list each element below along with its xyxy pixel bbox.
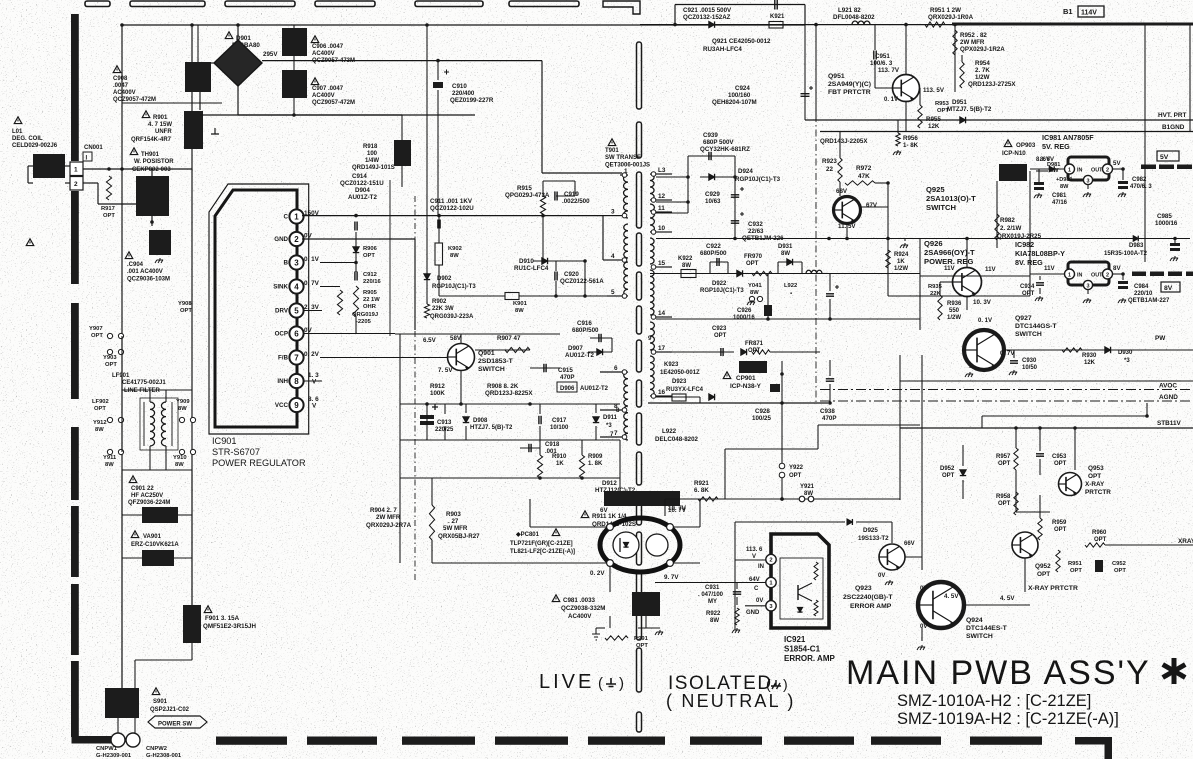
- svg-text:CE41775-002J1: CE41775-002J1: [122, 380, 166, 386]
- svg-text:R930: R930: [1082, 353, 1097, 359]
- svg-text:QRX05BJ-R27: QRX05BJ-R27: [438, 533, 480, 540]
- svg-text:CELD029-002J6: CELD029-002J6: [12, 143, 58, 149]
- svg-text:R972: R972: [856, 165, 872, 172]
- svg-text:ICP-N10: ICP-N10: [1002, 150, 1026, 157]
- svg-text:V: V: [752, 554, 756, 560]
- svg-text:RU3YX-LFC4: RU3YX-LFC4: [666, 387, 704, 393]
- svg-text:AU01Z-T2: AU01Z-T2: [565, 352, 594, 359]
- svg-text:B: B: [284, 260, 289, 267]
- svg-text:S1854-C1: S1854-C1: [784, 645, 821, 654]
- svg-text:4. 7 15W: 4. 7 15W: [148, 122, 172, 128]
- svg-text:AC400V: AC400V: [312, 51, 335, 57]
- svg-text:POWER SW: POWER SW: [158, 722, 192, 728]
- svg-text:QCZ9057-472M: QCZ9057-472M: [312, 100, 355, 106]
- svg-text:X-RAY PRTCTR: X-RAY PRTCTR: [1028, 585, 1078, 592]
- svg-text:D922: D922: [712, 281, 727, 287]
- svg-text:7: 7: [294, 353, 299, 362]
- svg-text:6: 6: [294, 329, 299, 338]
- svg-text:100/25: 100/25: [752, 415, 771, 422]
- svg-text:C919: C919: [564, 191, 579, 198]
- svg-text:11V: 11V: [944, 265, 956, 272]
- svg-text:TH901: TH901: [141, 152, 160, 158]
- svg-text:STR-S6707: STR-S6707: [212, 447, 260, 457]
- svg-text:0. 1V: 0. 1V: [884, 97, 898, 103]
- svg-text:C985: C985: [1157, 213, 1172, 220]
- svg-text:Q924: Q924: [966, 617, 983, 624]
- svg-text:680P/500: 680P/500: [700, 250, 727, 257]
- svg-text:R960: R960: [1092, 530, 1107, 536]
- svg-text:C908: C908: [113, 76, 128, 82]
- svg-text:R909: R909: [588, 454, 603, 460]
- svg-text:R905: R905: [363, 290, 378, 296]
- svg-text:.0022/500: .0022/500: [562, 198, 590, 205]
- svg-text:4. 5V: 4. 5V: [1000, 595, 1015, 602]
- svg-text:67V: 67V: [866, 202, 878, 209]
- svg-text:9: 9: [648, 335, 652, 342]
- svg-text:OPT: OPT: [1037, 571, 1050, 578]
- svg-text:. 047/100: . 047/100: [698, 592, 724, 598]
- svg-text:1/4W: 1/4W: [365, 158, 379, 164]
- svg-text:L921 82: L921 82: [838, 7, 861, 14]
- svg-text:OPT: OPT: [1114, 568, 1126, 574]
- svg-text:3: 3: [294, 258, 299, 267]
- svg-text:OPT: OPT: [714, 333, 727, 339]
- svg-text:0. 1V: 0. 1V: [304, 256, 320, 263]
- svg-text:TL821-LF2[C-21ZE(-A)]: TL821-LF2[C-21ZE(-A)]: [510, 549, 575, 555]
- svg-text:R901: R901: [153, 115, 168, 121]
- svg-text:C907 .0047: C907 .0047: [312, 86, 344, 92]
- svg-text:CNPW2: CNPW2: [146, 746, 167, 752]
- svg-text:INH: INH: [277, 378, 288, 385]
- svg-text:Q926: Q926: [924, 239, 943, 248]
- svg-text:7: 7: [614, 430, 618, 437]
- svg-text:114V: 114V: [1081, 10, 1097, 17]
- svg-text:B1GND: B1GND: [1162, 124, 1185, 131]
- svg-text:C915: C915: [558, 367, 573, 374]
- svg-text:15: 15: [658, 260, 666, 267]
- svg-text:SWITCH: SWITCH: [926, 203, 956, 212]
- svg-text:GND: GND: [274, 236, 288, 243]
- svg-text:QRX029J-2R7A: QRX029J-2R7A: [366, 522, 412, 529]
- svg-text:C920: C920: [564, 271, 579, 278]
- svg-text:D904: D904: [355, 187, 370, 194]
- svg-text:2: 2: [769, 558, 772, 564]
- svg-text:PRTCTR: PRTCTR: [1085, 489, 1111, 496]
- svg-text:SWITCH: SWITCH: [966, 633, 993, 640]
- svg-text:C: C: [754, 586, 759, 592]
- svg-text:4: 4: [611, 253, 615, 260]
- svg-text:VA901: VA901: [143, 534, 162, 540]
- svg-text:*3: *3: [1124, 358, 1130, 364]
- svg-text:0. 2V: 0. 2V: [304, 351, 320, 358]
- svg-text:R957: R957: [996, 454, 1011, 460]
- svg-text:OPT: OPT: [1094, 537, 1107, 543]
- svg-text:CN001: CN001: [84, 145, 103, 151]
- svg-text:.0047: .0047: [113, 83, 129, 89]
- svg-text:+D981: +D981: [1056, 177, 1073, 183]
- svg-text:5V. REG: 5V. REG: [1042, 142, 1070, 151]
- svg-text:QRX029J-1R0A: QRX029J-1R0A: [928, 14, 974, 21]
- svg-text:DFL0048-8202: DFL0048-8202: [833, 14, 875, 21]
- svg-text:100/6. 3: 100/6. 3: [870, 60, 893, 67]
- svg-text:C951: C951: [875, 53, 890, 60]
- svg-text:QCZ9036-103M: QCZ9036-103M: [127, 276, 170, 282]
- svg-text:Q901: Q901: [478, 350, 495, 357]
- svg-text:RU3AH-LFC4: RU3AH-LFC4: [703, 46, 742, 53]
- svg-text:68V: 68V: [836, 188, 848, 195]
- svg-text:OP903: OP903: [1016, 142, 1036, 149]
- svg-text:Y907: Y907: [89, 326, 103, 332]
- svg-text:D908: D908: [473, 418, 488, 424]
- svg-text:47K: 47K: [858, 173, 870, 180]
- svg-text:C929: C929: [705, 191, 720, 198]
- svg-text:QRD123J-2725X: QRD123J-2725X: [968, 81, 1016, 88]
- svg-text:D924: D924: [738, 168, 753, 175]
- svg-text:SINK: SINK: [273, 284, 288, 291]
- svg-text:DEG. COIL: DEG. COIL: [12, 136, 43, 142]
- svg-text:HF AC250V: HF AC250V: [131, 493, 163, 499]
- svg-text:. 27: . 27: [448, 518, 459, 525]
- svg-text:QCZ9038-332M: QCZ9038-332M: [561, 605, 605, 612]
- svg-text:QCZ0122-561A: QCZ0122-561A: [560, 278, 604, 285]
- svg-text:-2205: -2205: [356, 319, 372, 325]
- svg-text:8W: 8W: [781, 251, 790, 257]
- svg-text:2W MFR: 2W MFR: [376, 514, 401, 521]
- svg-text:8W: 8W: [710, 618, 719, 624]
- svg-text:MAIN PWB ASS'Y: MAIN PWB ASS'Y: [846, 654, 1151, 692]
- svg-text:ERROR. AMP: ERROR. AMP: [784, 654, 835, 663]
- svg-text:QRD149J-101S: QRD149J-101S: [352, 165, 395, 171]
- svg-text:1000/16: 1000/16: [1155, 220, 1178, 227]
- svg-text:QCY32HK-681RZ: QCY32HK-681RZ: [700, 146, 750, 153]
- svg-text:C906 .0047: C906 .0047: [312, 44, 344, 50]
- svg-text:16: 16: [658, 389, 666, 396]
- svg-text:Q927: Q927: [1015, 315, 1032, 322]
- svg-text:295V: 295V: [263, 51, 278, 58]
- svg-text:C952: C952: [1112, 561, 1126, 567]
- svg-text:22/63: 22/63: [748, 228, 764, 235]
- svg-text:IC981 AN7805F: IC981 AN7805F: [1042, 133, 1094, 142]
- svg-text:R921: R921: [694, 480, 709, 487]
- svg-text:HTZJ7. 5(B)-T2: HTZJ7. 5(B)-T2: [470, 425, 513, 431]
- svg-text:Q951: Q951: [828, 73, 845, 80]
- svg-text:Y908: Y908: [178, 301, 192, 307]
- svg-text:R917: R917: [101, 206, 115, 212]
- svg-text:8W: 8W: [450, 253, 459, 259]
- svg-text:1: 1: [294, 212, 299, 221]
- svg-text:8V: 8V: [1113, 265, 1121, 272]
- svg-text:TLP721F(GR)[C-21ZE]: TLP721F(GR)[C-21ZE]: [510, 541, 573, 547]
- svg-text:Q923: Q923: [855, 585, 872, 592]
- svg-text:OPT: OPT: [998, 461, 1011, 467]
- svg-text:C939: C939: [703, 132, 718, 139]
- svg-text:0V: 0V: [920, 624, 927, 630]
- svg-text:R912: R912: [430, 383, 445, 390]
- svg-text:ICP-N38-Y: ICP-N38-Y: [730, 383, 762, 390]
- svg-text:SW TRANSF: SW TRANSF: [605, 155, 641, 161]
- svg-text:5: 5: [294, 306, 299, 315]
- svg-text:C912: C912: [363, 272, 377, 278]
- svg-text:Y041: Y041: [748, 283, 762, 289]
- svg-text:G-H2309-001: G-H2309-001: [96, 753, 132, 759]
- svg-text:( NEUTRAL ): ( NEUTRAL ): [666, 691, 796, 711]
- svg-text:C914: C914: [352, 173, 367, 180]
- svg-text:SWITCH: SWITCH: [478, 366, 505, 373]
- svg-text:FBT PRTCTR: FBT PRTCTR: [828, 89, 871, 96]
- svg-text:OHR: OHR: [363, 304, 377, 310]
- svg-text:OPT: OPT: [1070, 568, 1082, 574]
- svg-text:R956: R956: [903, 135, 918, 142]
- svg-text:6: 6: [614, 365, 618, 372]
- svg-text:Y921: Y921: [800, 484, 815, 490]
- svg-text:Y909: Y909: [176, 399, 190, 405]
- svg-text:CP901: CP901: [736, 375, 756, 382]
- svg-text:1K: 1K: [897, 259, 905, 265]
- svg-text:IN: IN: [1077, 168, 1082, 174]
- svg-text:C953: C953: [1052, 454, 1067, 460]
- svg-text:Y912: Y912: [93, 420, 107, 426]
- svg-text:2. 7K: 2. 7K: [975, 67, 990, 74]
- svg-text:220/16: 220/16: [363, 279, 382, 285]
- svg-text:1: 1: [624, 168, 628, 175]
- svg-text:0. 2V: 0. 2V: [590, 570, 605, 577]
- svg-text:1E42050-001Z: 1E42050-001Z: [660, 370, 700, 376]
- svg-text:5: 5: [611, 289, 615, 296]
- svg-text:QCZ0132-152AZ: QCZ0132-152AZ: [683, 14, 731, 21]
- svg-text:VCC: VCC: [275, 402, 289, 409]
- svg-text:2. 2/1W: 2. 2/1W: [1000, 225, 1021, 232]
- svg-text:C934: C934: [1020, 284, 1035, 290]
- svg-text:100/160: 100/160: [728, 92, 751, 99]
- svg-text:3: 3: [1086, 179, 1089, 185]
- svg-text:22: 22: [826, 166, 833, 173]
- svg-text:LF901: LF901: [112, 373, 130, 379]
- svg-text:0. 1V: 0. 1V: [978, 318, 992, 324]
- svg-text:RU1C-LFC4: RU1C-LFC4: [514, 265, 549, 272]
- svg-text:AU01Z-T2: AU01Z-T2: [580, 386, 609, 392]
- svg-text:): ): [619, 675, 624, 692]
- svg-text:G-H2308-001: G-H2308-001: [146, 753, 182, 759]
- svg-text:OCP: OCP: [275, 331, 288, 338]
- svg-text:7: 7: [610, 431, 614, 438]
- svg-text:2W MFR: 2W MFR: [960, 39, 985, 46]
- svg-text:R904 2. 7: R904 2. 7: [370, 507, 397, 514]
- svg-text:C921 .0015 500V: C921 .0015 500V: [683, 7, 732, 14]
- svg-text:C: C: [284, 214, 289, 221]
- svg-text:UNFR: UNFR: [155, 129, 172, 135]
- svg-text:17: 17: [658, 345, 666, 352]
- svg-text:1K: 1K: [556, 461, 564, 467]
- svg-text:8W: 8W: [1060, 184, 1069, 190]
- svg-text:8: 8: [616, 407, 620, 414]
- svg-text:R903: R903: [446, 511, 461, 518]
- svg-text:11V: 11V: [985, 266, 997, 273]
- svg-text:2SA949(Y)(C): 2SA949(Y)(C): [828, 81, 871, 88]
- svg-text:C981 .0033: C981 .0033: [563, 597, 596, 604]
- svg-text:66V: 66V: [904, 541, 915, 547]
- svg-text:1/2W: 1/2W: [975, 74, 990, 81]
- svg-text:2: 2: [294, 235, 299, 244]
- svg-text:D930: D930: [1118, 350, 1133, 356]
- svg-text:POWER REGULATOR: POWER REGULATOR: [212, 458, 306, 468]
- svg-text:19S133-T2: 19S133-T2: [858, 535, 889, 542]
- svg-text:R908 8. 2K: R908 8. 2K: [487, 383, 519, 390]
- svg-text:W. POSISTOR: W. POSISTOR: [134, 159, 174, 165]
- svg-text:DRV: DRV: [275, 308, 289, 315]
- svg-text:R918: R918: [363, 144, 378, 150]
- svg-text:OPT: OPT: [1022, 291, 1035, 297]
- svg-text:R959: R959: [1052, 520, 1067, 526]
- svg-text:0. 7V: 0. 7V: [304, 280, 320, 287]
- svg-text:8W: 8W: [750, 290, 759, 296]
- svg-text:C916: C916: [577, 320, 592, 327]
- svg-text:AC400V: AC400V: [312, 93, 335, 99]
- svg-text:2: 2: [74, 181, 78, 188]
- svg-text:K902: K902: [448, 246, 462, 252]
- svg-text:QFZ9036-224M: QFZ9036-224M: [128, 500, 170, 506]
- svg-text:HVT. PRT: HVT. PRT: [1158, 112, 1187, 119]
- svg-text:AVOC: AVOC: [1159, 383, 1177, 390]
- svg-text:R906: R906: [363, 246, 378, 252]
- svg-text:1: 1: [1068, 273, 1071, 279]
- svg-text:C917: C917: [552, 418, 567, 424]
- svg-text:113. 5V: 113. 5V: [923, 87, 945, 94]
- svg-text:470P: 470P: [822, 415, 836, 422]
- svg-text:R902: R902: [432, 299, 447, 305]
- svg-text:1/2W: 1/2W: [894, 266, 908, 272]
- svg-text:D907: D907: [568, 345, 583, 352]
- svg-text:IN: IN: [1077, 273, 1082, 279]
- svg-text:8V: 8V: [1164, 285, 1173, 292]
- svg-text:1000/16: 1000/16: [733, 315, 755, 321]
- svg-text:680P/500: 680P/500: [572, 327, 599, 334]
- svg-text:3: 3: [1086, 284, 1089, 290]
- svg-text:QCZ0122-102U: QCZ0122-102U: [430, 205, 474, 212]
- svg-text:C932: C932: [748, 221, 763, 228]
- svg-text:OPT: OPT: [103, 213, 115, 219]
- svg-text:V: V: [312, 403, 317, 410]
- svg-text:F/B: F/B: [278, 355, 288, 362]
- svg-text:2. 3V: 2. 3V: [304, 304, 320, 311]
- svg-text:QPX029J-1R2A: QPX029J-1R2A: [960, 46, 1005, 53]
- svg-text:C910: C910: [452, 83, 467, 90]
- svg-text:K921: K921: [770, 14, 785, 20]
- svg-text:12K: 12K: [1084, 360, 1096, 366]
- svg-text:L3: L3: [658, 167, 666, 174]
- svg-text:R951: R951: [1068, 561, 1083, 567]
- svg-text:K923: K923: [664, 362, 679, 368]
- svg-text:7. 5V: 7. 5V: [438, 367, 453, 374]
- svg-text:0V: 0V: [920, 586, 927, 592]
- svg-text:22K 3W: 22K 3W: [432, 306, 454, 312]
- svg-text:FR871: FR871: [745, 341, 764, 347]
- svg-text:Q953: Q953: [1088, 465, 1104, 472]
- svg-text:OPT: OPT: [105, 362, 117, 368]
- svg-text:0V: 0V: [878, 573, 885, 579]
- svg-text:R922: R922: [706, 611, 721, 617]
- svg-text:OPT: OPT: [363, 253, 375, 259]
- svg-text:8W: 8W: [1050, 168, 1059, 174]
- svg-text:2: 2: [1106, 273, 1109, 279]
- svg-text:0V: 0V: [304, 327, 313, 334]
- svg-text:8W: 8W: [105, 462, 114, 468]
- svg-text:OPT: OPT: [94, 406, 106, 412]
- svg-text:OPT: OPT: [942, 473, 955, 479]
- svg-text:550: 550: [949, 308, 960, 314]
- svg-text:C928: C928: [755, 408, 770, 415]
- svg-text:DELC048-8202: DELC048-8202: [655, 436, 699, 443]
- svg-text:12: 12: [658, 193, 666, 200]
- svg-text:.C904: .C904: [127, 262, 144, 268]
- svg-text:RGP10J(C1)-T3: RGP10J(C1)-T3: [700, 288, 744, 294]
- svg-text:AGND: AGND: [1159, 394, 1178, 401]
- svg-text:IC901: IC901: [212, 436, 237, 446]
- svg-text:Y903: Y903: [103, 355, 117, 361]
- svg-text:*3: *3: [606, 423, 612, 429]
- svg-text:L01: L01: [12, 129, 23, 135]
- svg-text:GND: GND: [746, 610, 760, 616]
- svg-text:QRF154K-4R7: QRF154K-4R7: [131, 137, 172, 143]
- svg-text:IC921: IC921: [784, 635, 806, 644]
- svg-text:113. 7V: 113. 7V: [878, 67, 900, 74]
- svg-text:C918: C918: [545, 442, 560, 448]
- svg-text:6V: 6V: [600, 507, 608, 514]
- svg-text:Y922: Y922: [789, 465, 804, 471]
- svg-text:QRD143J-2205X: QRD143J-2205X: [820, 138, 868, 145]
- svg-text:CNPW1: CNPW1: [96, 746, 118, 752]
- svg-text:FR970: FR970: [744, 254, 763, 260]
- svg-text:D906: D906: [560, 386, 575, 392]
- svg-text:220/400: 220/400: [452, 90, 475, 97]
- svg-text:8W: 8W: [175, 462, 184, 468]
- svg-text:C923: C923: [712, 326, 727, 332]
- svg-text:R936: R936: [947, 301, 962, 307]
- svg-text:AU01Z-T2: AU01Z-T2: [348, 194, 377, 201]
- svg-text:.001 AC400V: .001 AC400V: [127, 269, 163, 275]
- svg-text:C984: C984: [1134, 284, 1149, 290]
- svg-text:OUT: OUT: [1091, 273, 1103, 279]
- svg-text:1/2W: 1/2W: [947, 315, 961, 321]
- svg-text:OPT: OPT: [998, 501, 1011, 507]
- svg-text:QCZ9057-472M: QCZ9057-472M: [113, 97, 156, 103]
- svg-text:QRG039J-223A: QRG039J-223A: [430, 314, 474, 320]
- svg-text:LIVE: LIVE: [539, 671, 594, 693]
- svg-text:R954: R954: [975, 60, 990, 67]
- svg-text:ERZ-C10VK621A: ERZ-C10VK621A: [131, 542, 179, 548]
- svg-text:ERROR AMP: ERROR AMP: [850, 603, 892, 610]
- svg-text:F901 3. 15A: F901 3. 15A: [205, 615, 240, 622]
- svg-text:▪: ▪: [790, 291, 792, 297]
- svg-text:LINE FILTER: LINE FILTER: [124, 388, 161, 394]
- svg-text:5V: 5V: [1160, 154, 1169, 161]
- svg-text:C926: C926: [737, 308, 752, 314]
- svg-text:IN: IN: [758, 564, 764, 570]
- svg-text:5V: 5V: [1113, 160, 1121, 167]
- svg-text:R923: R923: [822, 158, 837, 165]
- svg-text:15R35-100A-T2: 15R35-100A-T2: [1104, 251, 1148, 257]
- svg-text:C938: C938: [820, 408, 835, 415]
- svg-text:MY: MY: [708, 599, 717, 605]
- svg-text:1: 1: [74, 167, 78, 174]
- svg-text:8W: 8W: [515, 308, 524, 314]
- svg-text:Q925: Q925: [926, 185, 945, 194]
- svg-text:100K: 100K: [430, 390, 445, 397]
- svg-text:T901: T901: [605, 148, 619, 154]
- svg-text:1: 1: [1068, 168, 1071, 174]
- svg-text:LF902: LF902: [92, 399, 109, 405]
- svg-text:D910: D910: [519, 258, 534, 265]
- svg-text:QETB1AM-227: QETB1AM-227: [1128, 298, 1170, 304]
